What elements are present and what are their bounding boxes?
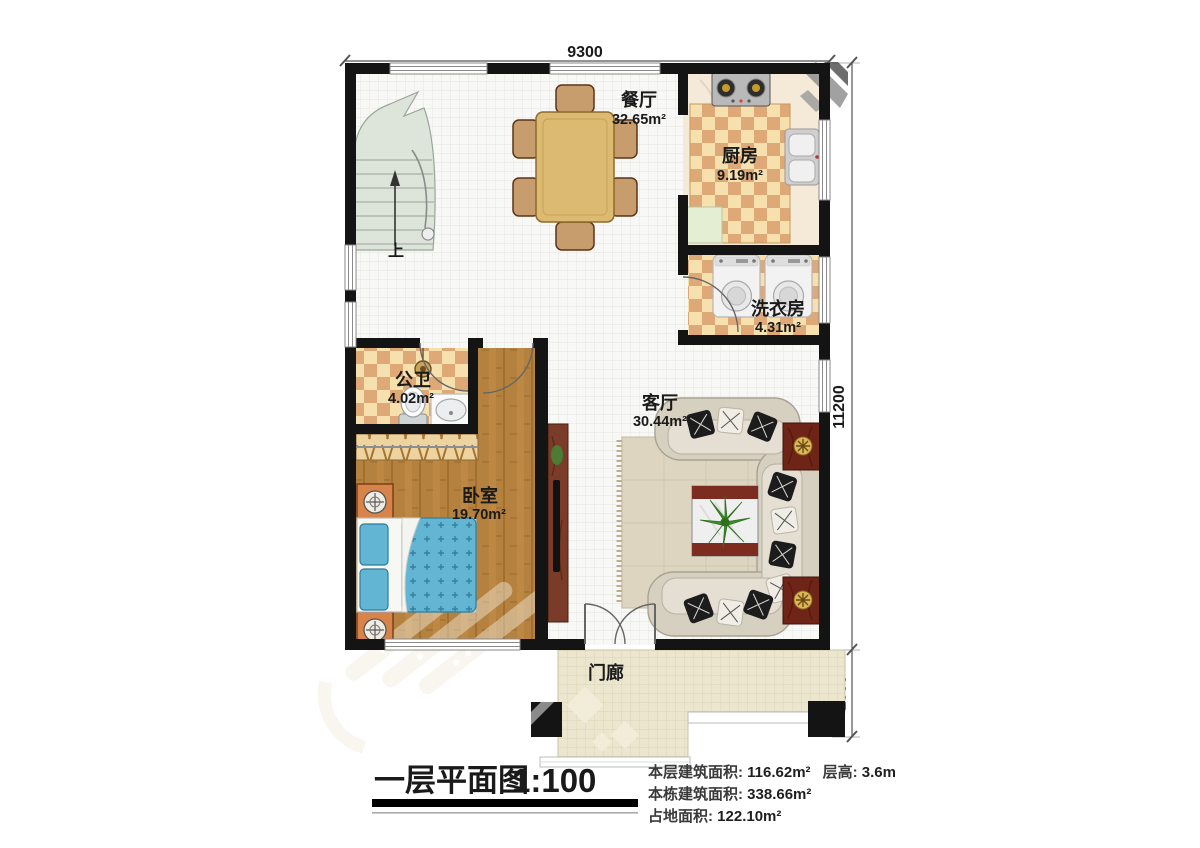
window-kitchen bbox=[819, 120, 830, 200]
room-label-bathroom: 公卫 bbox=[395, 370, 431, 390]
coffee-table bbox=[692, 486, 758, 556]
room-label-bedroom: 卧室 bbox=[462, 485, 498, 506]
legend-title: 一层平面图 bbox=[374, 763, 529, 798]
kitchen-sink bbox=[785, 129, 819, 185]
window-laundry bbox=[819, 257, 830, 323]
nightstand-top bbox=[357, 484, 393, 520]
window-left-2 bbox=[345, 302, 356, 347]
side-table-top bbox=[783, 423, 823, 470]
bed-pillow-2 bbox=[360, 569, 388, 610]
floor-plan-page: 9300 11200 1600 bbox=[0, 0, 1200, 848]
window-bedroom bbox=[385, 639, 520, 650]
window-living bbox=[819, 360, 830, 412]
wardrobe bbox=[356, 434, 478, 460]
room-label-laundry: 洗衣房 bbox=[751, 298, 805, 319]
room-area-bathroom: 4.02m² bbox=[388, 391, 434, 407]
dimension-height-label: 11200 bbox=[831, 385, 848, 429]
legend: 一层平面图 1:100 本层建筑面积: 116.62m²层高: 3.6m 本栋建… bbox=[372, 762, 896, 825]
room-label-dining: 餐厅 bbox=[620, 89, 657, 110]
tv-screen bbox=[553, 480, 560, 572]
legend-scale: 1:100 bbox=[512, 762, 596, 799]
room-area-laundry: 4.31m² bbox=[755, 320, 801, 336]
room-area-dining: 32.65m² bbox=[612, 112, 666, 128]
porch-step-right bbox=[688, 712, 810, 723]
porch-column-right bbox=[808, 701, 845, 737]
legend-title-underline bbox=[372, 812, 638, 814]
stat-floor-area: 本层建筑面积: 116.62m²层高: 3.6m bbox=[648, 763, 896, 781]
room-area-living: 30.44m² bbox=[633, 414, 687, 430]
room-area-bedroom: 19.70m² bbox=[452, 507, 506, 523]
window-top-2 bbox=[550, 63, 660, 74]
kitchen-counter bbox=[686, 207, 722, 243]
room-label-kitchen: 厨房 bbox=[722, 145, 758, 166]
bed-pillow-1 bbox=[360, 524, 388, 565]
stair-newel bbox=[422, 228, 434, 240]
room-label-porch: 门廊 bbox=[588, 662, 624, 683]
stove bbox=[712, 72, 770, 106]
stairs-up-label: 上 bbox=[388, 242, 404, 260]
window-top-1 bbox=[390, 63, 487, 74]
stat-building-area: 本栋建筑面积: 338.66m² bbox=[648, 785, 811, 803]
cabinet-plant bbox=[551, 445, 563, 465]
bathroom-sink bbox=[431, 394, 471, 426]
dining-table bbox=[536, 112, 614, 222]
tv-cabinet bbox=[548, 424, 568, 622]
room-area-kitchen: 9.19m² bbox=[717, 168, 763, 184]
stat-land-area: 占地面积: 122.10m² bbox=[648, 807, 781, 825]
room-label-living: 客厅 bbox=[642, 392, 678, 413]
floor-plan-svg: 9300 11200 1600 bbox=[0, 0, 1200, 848]
dimension-width-label: 9300 bbox=[567, 44, 603, 61]
window-left-1 bbox=[345, 245, 356, 290]
bed bbox=[357, 518, 476, 612]
legend-title-bar bbox=[372, 799, 638, 807]
side-table-bottom bbox=[783, 577, 823, 624]
